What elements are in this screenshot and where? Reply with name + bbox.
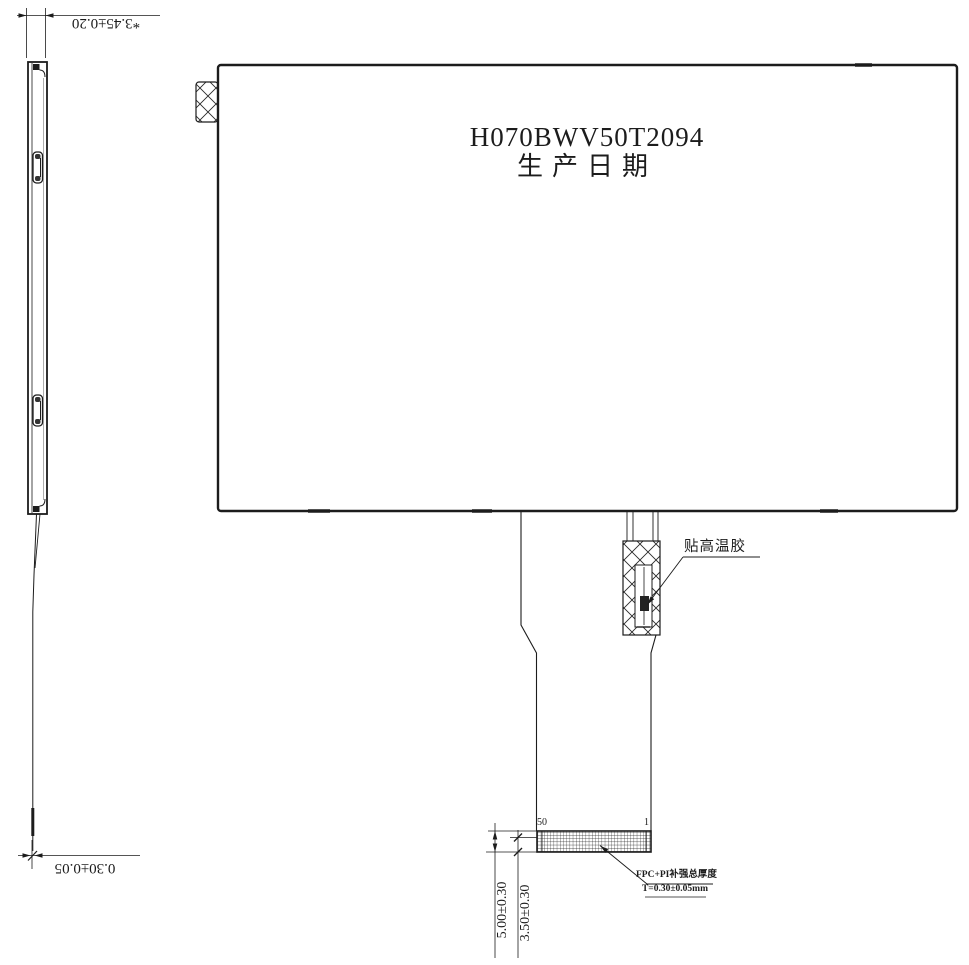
fpc-connector (537, 831, 651, 852)
side-clip-top-icon (33, 152, 43, 183)
thickness-dimension-text: *3.45±0.20 (50, 8, 162, 30)
side-view-outline (28, 62, 47, 514)
fpc-exit-lines (627, 511, 658, 541)
side-clip-bottom-icon (33, 395, 43, 426)
contact-height-dimension-text: 3.50±0.30 (519, 865, 535, 961)
panel-model-number: H070BWV50T2094 (380, 124, 794, 151)
production-date-label: 生产日期 (380, 154, 794, 180)
pin-1-label: 1 (644, 818, 649, 828)
tape-label-leader (647, 557, 760, 605)
fpc-thickness-dimension-text: 0.30±0.05 (33, 853, 137, 875)
tape-hatch-area (623, 541, 660, 635)
engineering-drawing: H070BWV50T2094 生产日期 *3.45±0.20 0.30±0.05… (0, 0, 969, 965)
pin-50-label: 50 (537, 818, 547, 828)
high-temp-tape-label: 贴高温胶 (684, 540, 746, 555)
side-view (17, 8, 160, 869)
stiffener-note-line2: T=0.30±0.05mm (636, 885, 714, 895)
corner-hatch-pad (196, 82, 218, 122)
side-view-fpc-wire (33, 514, 40, 851)
stiffener-note-line1: FPC+PI补强总厚度 (636, 871, 714, 881)
connector-height-dimension-text: 5.00±0.30 (496, 862, 512, 958)
